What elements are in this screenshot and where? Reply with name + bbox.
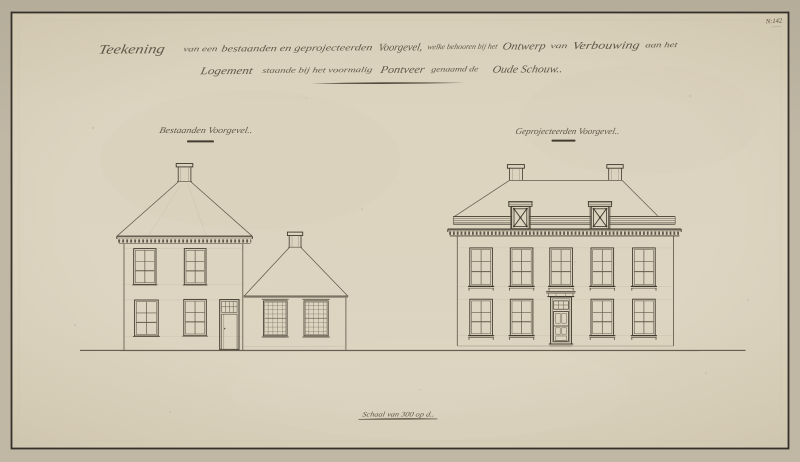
svg-text:aan het: aan het xyxy=(645,40,680,49)
svg-text:Ontwerp: Ontwerp xyxy=(501,41,546,52)
svg-text:Verbouwing: Verbouwing xyxy=(571,40,640,51)
svg-text:Voorgevel,: Voorgevel, xyxy=(377,42,423,53)
svg-text:van een: van een xyxy=(183,44,219,53)
svg-text:Geprojecteerden Voorgevel..: Geprojecteerden Voorgevel.. xyxy=(515,126,621,136)
svg-text:Teekening: Teekening xyxy=(97,41,167,56)
svg-text:Logement: Logement xyxy=(198,66,255,77)
svg-text:van: van xyxy=(550,41,569,50)
svg-text:Pontveer: Pontveer xyxy=(378,65,426,76)
svg-text:bestaanden en geprojecteerden: bestaanden en geprojecteerden xyxy=(221,42,375,53)
svg-text:N:142: N:142 xyxy=(765,17,783,25)
svg-text:staande bij het voormalig: staande bij het voormalig xyxy=(262,65,374,75)
svg-text:Bestaanden Voorgevel..: Bestaanden Voorgevel.. xyxy=(159,125,254,135)
svg-text:Oude Schouw..: Oude Schouw.. xyxy=(491,64,563,75)
svg-text:welke behooren bij het: welke behooren bij het xyxy=(427,42,500,52)
svg-text:Schaal van 300 op d..: Schaal van 300 op d.. xyxy=(362,411,436,419)
svg-text:genaamd de: genaamd de xyxy=(431,64,481,73)
